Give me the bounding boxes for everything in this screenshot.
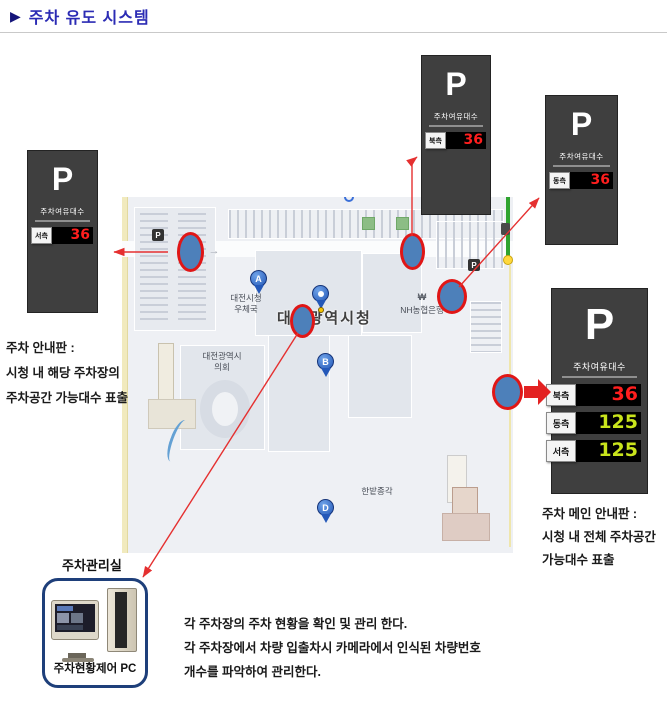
pc-icon (49, 588, 141, 654)
parking-sign-west: P 주차여유대수 서측 36 (27, 150, 98, 313)
sign-row-east: 동측 125 (552, 412, 641, 434)
p-symbol: P (546, 108, 617, 140)
council-label-line2: 의회 (196, 362, 248, 373)
side-label: 서측 (31, 227, 52, 244)
pc-tower-front (115, 592, 127, 648)
parking-sign-north: P 주차여유대수 북측 36 (421, 55, 491, 215)
note-line: 각 주차장의 주차 현황을 확인 및 관리 한다. (184, 612, 514, 636)
control-pc-box: 주차현황제어 PC (42, 578, 148, 688)
map-pin-b: B (317, 353, 334, 370)
sign-row: 서측 36 (31, 227, 93, 244)
title-bullet-icon: ▶ (10, 8, 21, 25)
screen-tile (71, 613, 83, 623)
map-pin-a: A (250, 270, 267, 287)
sign-row-west: 서측 125 (552, 440, 641, 462)
parking-sign-main: P 주차여유대수 북측 36 동측 125 서측 125 (551, 288, 648, 494)
available-count: 125 (576, 440, 641, 462)
screen-tile (57, 625, 83, 630)
pin-dot (318, 291, 324, 297)
parking-p-icon: P (468, 259, 480, 271)
city-hall-wing-left (268, 335, 330, 452)
page-title: ▶ 주차 유도 시스템 (10, 4, 150, 28)
p-symbol: P (422, 68, 490, 100)
map-gold-dot (318, 307, 324, 313)
sign-header: 주차여유대수 (562, 360, 637, 378)
council-label-line1: 대전광역시 (196, 351, 248, 362)
map-tree-square (362, 217, 375, 230)
p-symbol: P (552, 303, 647, 347)
side-label: 북측 (425, 132, 446, 149)
map-pin-city-hall (312, 285, 329, 302)
roundabout-icon (344, 197, 354, 202)
page-title-text: 주차 유도 시스템 (29, 4, 150, 28)
post-office-label-line1: 대전시청 (221, 293, 271, 304)
parking-spot-marker-east (437, 279, 467, 314)
map-parking-lot-east-lower (470, 301, 502, 353)
post-office-label: 대전시청 우체국 (221, 293, 271, 314)
parking-p-icon: P (152, 229, 164, 241)
map-road-marker (503, 255, 513, 265)
screen-tile (57, 613, 69, 623)
control-room-title: 주차관리실 (62, 555, 122, 574)
parking-spot-marker-west (177, 232, 204, 272)
side-label: 동측 (549, 172, 570, 189)
title-divider (0, 32, 667, 33)
camera-icon (501, 223, 510, 235)
monitor-base (62, 658, 94, 662)
bank-symbol: ₩ (410, 292, 434, 303)
pc-tower (107, 588, 137, 652)
pc-label: 주차현황제어 PC (45, 660, 145, 676)
side-label: 서측 (546, 440, 576, 462)
side-label: 북측 (546, 384, 576, 406)
sign-row: 동측 36 (549, 172, 613, 189)
city-hall-wing-right (348, 335, 412, 418)
side-label: 동측 (546, 412, 576, 434)
map-pin-d: D (317, 499, 334, 516)
sign-header: 주차여유대수 (35, 206, 90, 222)
parking-spot-marker-center (290, 304, 315, 338)
note-parking-sign: 주차 안내판 : 시청 내 해당 주차장의 주차공간 가능대수 표출 (6, 336, 144, 411)
bell-pavilion-label: 한밭종각 (347, 486, 407, 497)
available-count: 36 (570, 172, 613, 189)
available-count: 36 (576, 384, 641, 406)
sign-row: 북측 36 (425, 132, 486, 149)
post-office-label-line2: 우체국 (221, 304, 271, 315)
p-symbol: P (28, 163, 97, 195)
note-main-sign: 주차 메인 안내판 : 시청 내 전체 주차공간 가능대수 표출 (542, 503, 667, 572)
map-tree-square (396, 217, 409, 230)
screen-tile (57, 606, 73, 611)
council-ring-building (200, 380, 250, 438)
note-line: 주차공간 가능대수 표출 (6, 386, 144, 411)
pc-screen (55, 604, 95, 632)
note-line: 각 주차장에서 차량 입출차시 카메라에서 인식된 차량번호 (184, 636, 514, 660)
parking-spot-marker-north (400, 233, 425, 270)
available-count: 36 (446, 132, 486, 149)
sign-row-north: 북측 36 (552, 384, 641, 406)
note-line: 시청 내 전체 주차공간 (542, 526, 667, 549)
parking-sign-east: P 주차여유대수 동측 36 (545, 95, 618, 245)
sign-header: 주차여유대수 (429, 111, 483, 127)
note-line: 개수를 파악하여 관리한다. (184, 660, 514, 684)
available-count: 36 (52, 227, 93, 244)
available-count: 125 (576, 412, 641, 434)
note-line: 주차 메인 안내판 : (542, 503, 667, 526)
note-management: 각 주차장의 주차 현황을 확인 및 관리 한다. 각 주차장에서 차량 입출차… (184, 612, 514, 684)
page: ▶ 주차 유도 시스템 P P → (0, 0, 667, 702)
council-label: 대전광역시 의회 (196, 351, 248, 372)
note-line: 주차 안내판 : (6, 336, 144, 361)
road-direction-arrow: → (206, 245, 222, 259)
parking-spot-marker-southeast (492, 374, 523, 410)
building-block (442, 513, 490, 541)
note-line: 가능대수 표출 (542, 549, 667, 572)
sign-header: 주차여유대수 (553, 151, 610, 167)
pc-monitor (51, 600, 99, 640)
note-line: 시청 내 해당 주차장의 (6, 361, 144, 386)
